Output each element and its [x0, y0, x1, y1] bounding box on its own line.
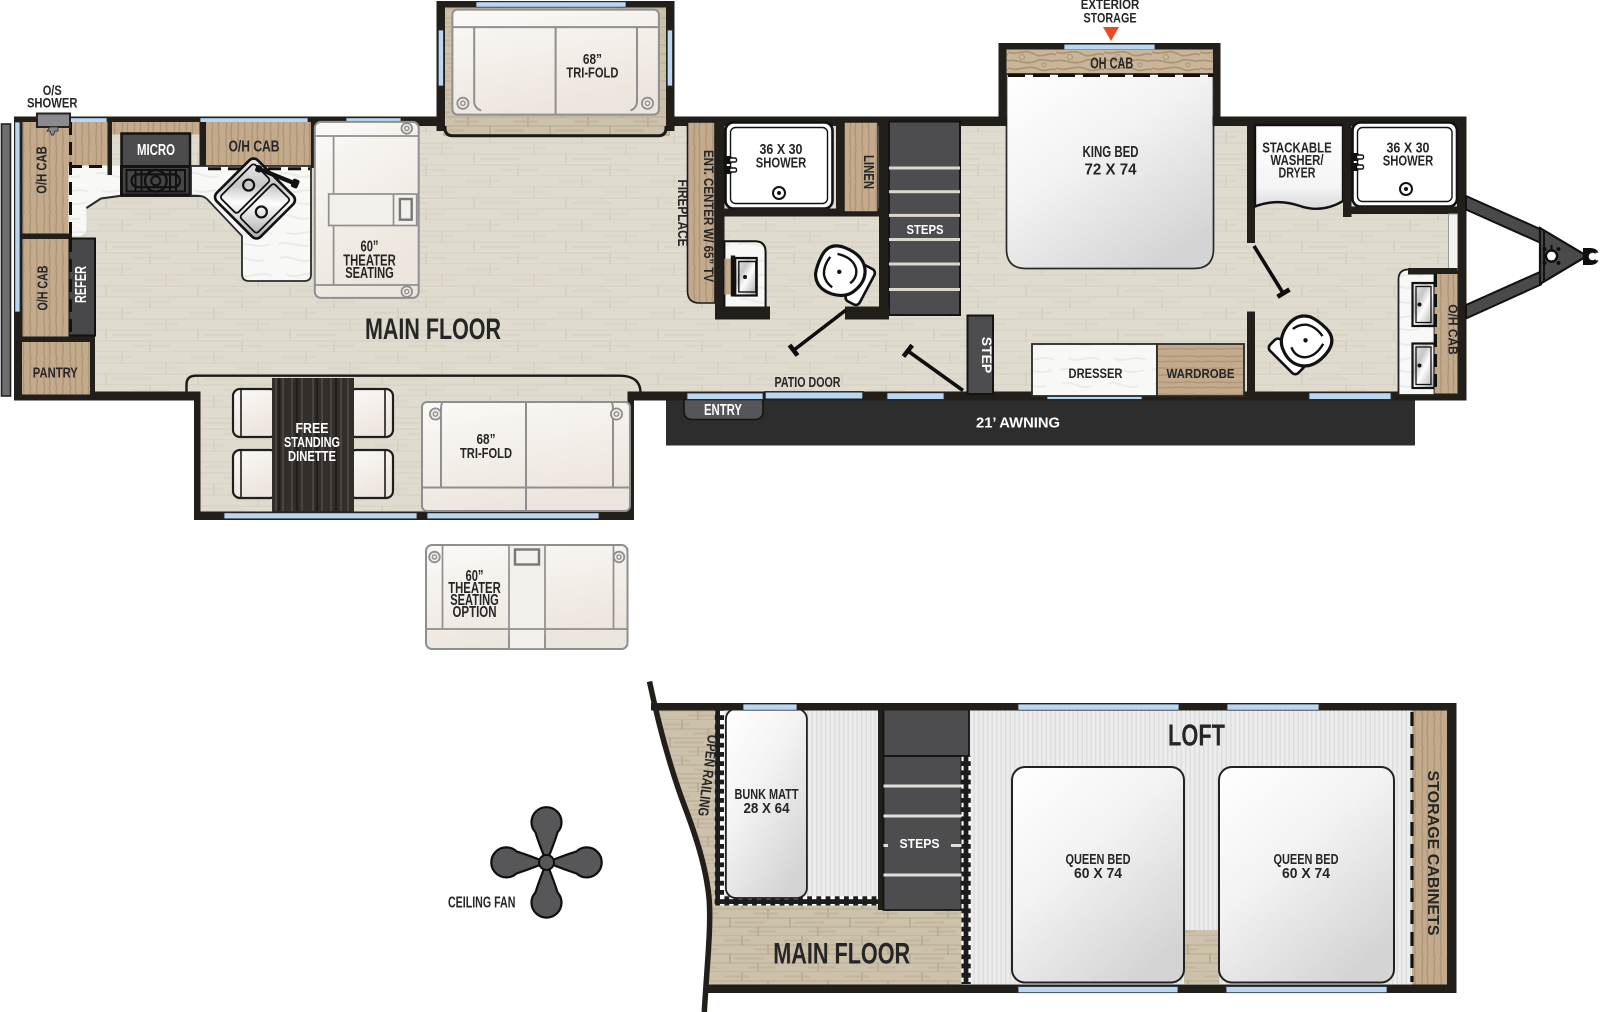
svg-text:CEILING FAN: CEILING FAN: [448, 895, 516, 912]
svg-text:O/H CAB: O/H CAB: [35, 265, 52, 310]
svg-text:DINETTE: DINETTE: [288, 448, 336, 465]
svg-text:MICRO: MICRO: [137, 142, 175, 159]
svg-text:REFER: REFER: [73, 266, 90, 303]
svg-text:STEPS: STEPS: [900, 836, 940, 851]
svg-text:ENTRY: ENTRY: [704, 402, 742, 419]
svg-text:SHOWER: SHOWER: [27, 96, 78, 111]
svg-text:60 X 74: 60 X 74: [1074, 866, 1122, 882]
svg-text:WARDROBE: WARDROBE: [1167, 366, 1235, 381]
svg-text:STEP: STEP: [979, 337, 995, 374]
svg-text:72 X 74: 72 X 74: [1085, 162, 1137, 179]
svg-text:SHOWER: SHOWER: [1383, 153, 1434, 170]
svg-text:LINEN: LINEN: [860, 155, 877, 189]
svg-text:MAIN FLOOR: MAIN FLOOR: [365, 313, 501, 346]
svg-text:PATIO DOOR: PATIO DOOR: [775, 375, 841, 391]
svg-text:TRI-FOLD: TRI-FOLD: [460, 445, 512, 462]
svg-text:OPTION: OPTION: [453, 604, 497, 621]
svg-text:TRI-FOLD: TRI-FOLD: [566, 65, 618, 82]
svg-text:PANTRY: PANTRY: [33, 366, 78, 382]
svg-text:KING BED: KING BED: [1083, 144, 1139, 161]
svg-text:DRYER: DRYER: [1279, 165, 1316, 182]
svg-text:MAIN FLOOR: MAIN FLOOR: [773, 938, 910, 971]
svg-text:ENT. CENTER W/ 65” TV: ENT. CENTER W/ 65” TV: [701, 150, 717, 283]
svg-text:SEATING: SEATING: [345, 265, 394, 282]
svg-text:28 X 64: 28 X 64: [744, 800, 791, 817]
svg-text:60 X 74: 60 X 74: [1282, 866, 1330, 882]
svg-text:OH CAB: OH CAB: [1090, 56, 1133, 73]
svg-text:O/H CAB: O/H CAB: [229, 139, 280, 156]
svg-text:STORAGE: STORAGE: [1084, 10, 1137, 26]
svg-text:LOFT: LOFT: [1168, 718, 1225, 753]
svg-text:O/H CAB: O/H CAB: [34, 146, 51, 194]
svg-text:DRESSER: DRESSER: [1069, 366, 1123, 381]
svg-text:21’ AWNING: 21’ AWNING: [976, 416, 1060, 432]
svg-text:STORAGE CABINETS: STORAGE CABINETS: [1424, 771, 1441, 936]
svg-text:SHOWER: SHOWER: [756, 155, 807, 172]
svg-text:STEPS: STEPS: [907, 222, 944, 237]
svg-text:O/H CAB: O/H CAB: [1446, 304, 1460, 355]
